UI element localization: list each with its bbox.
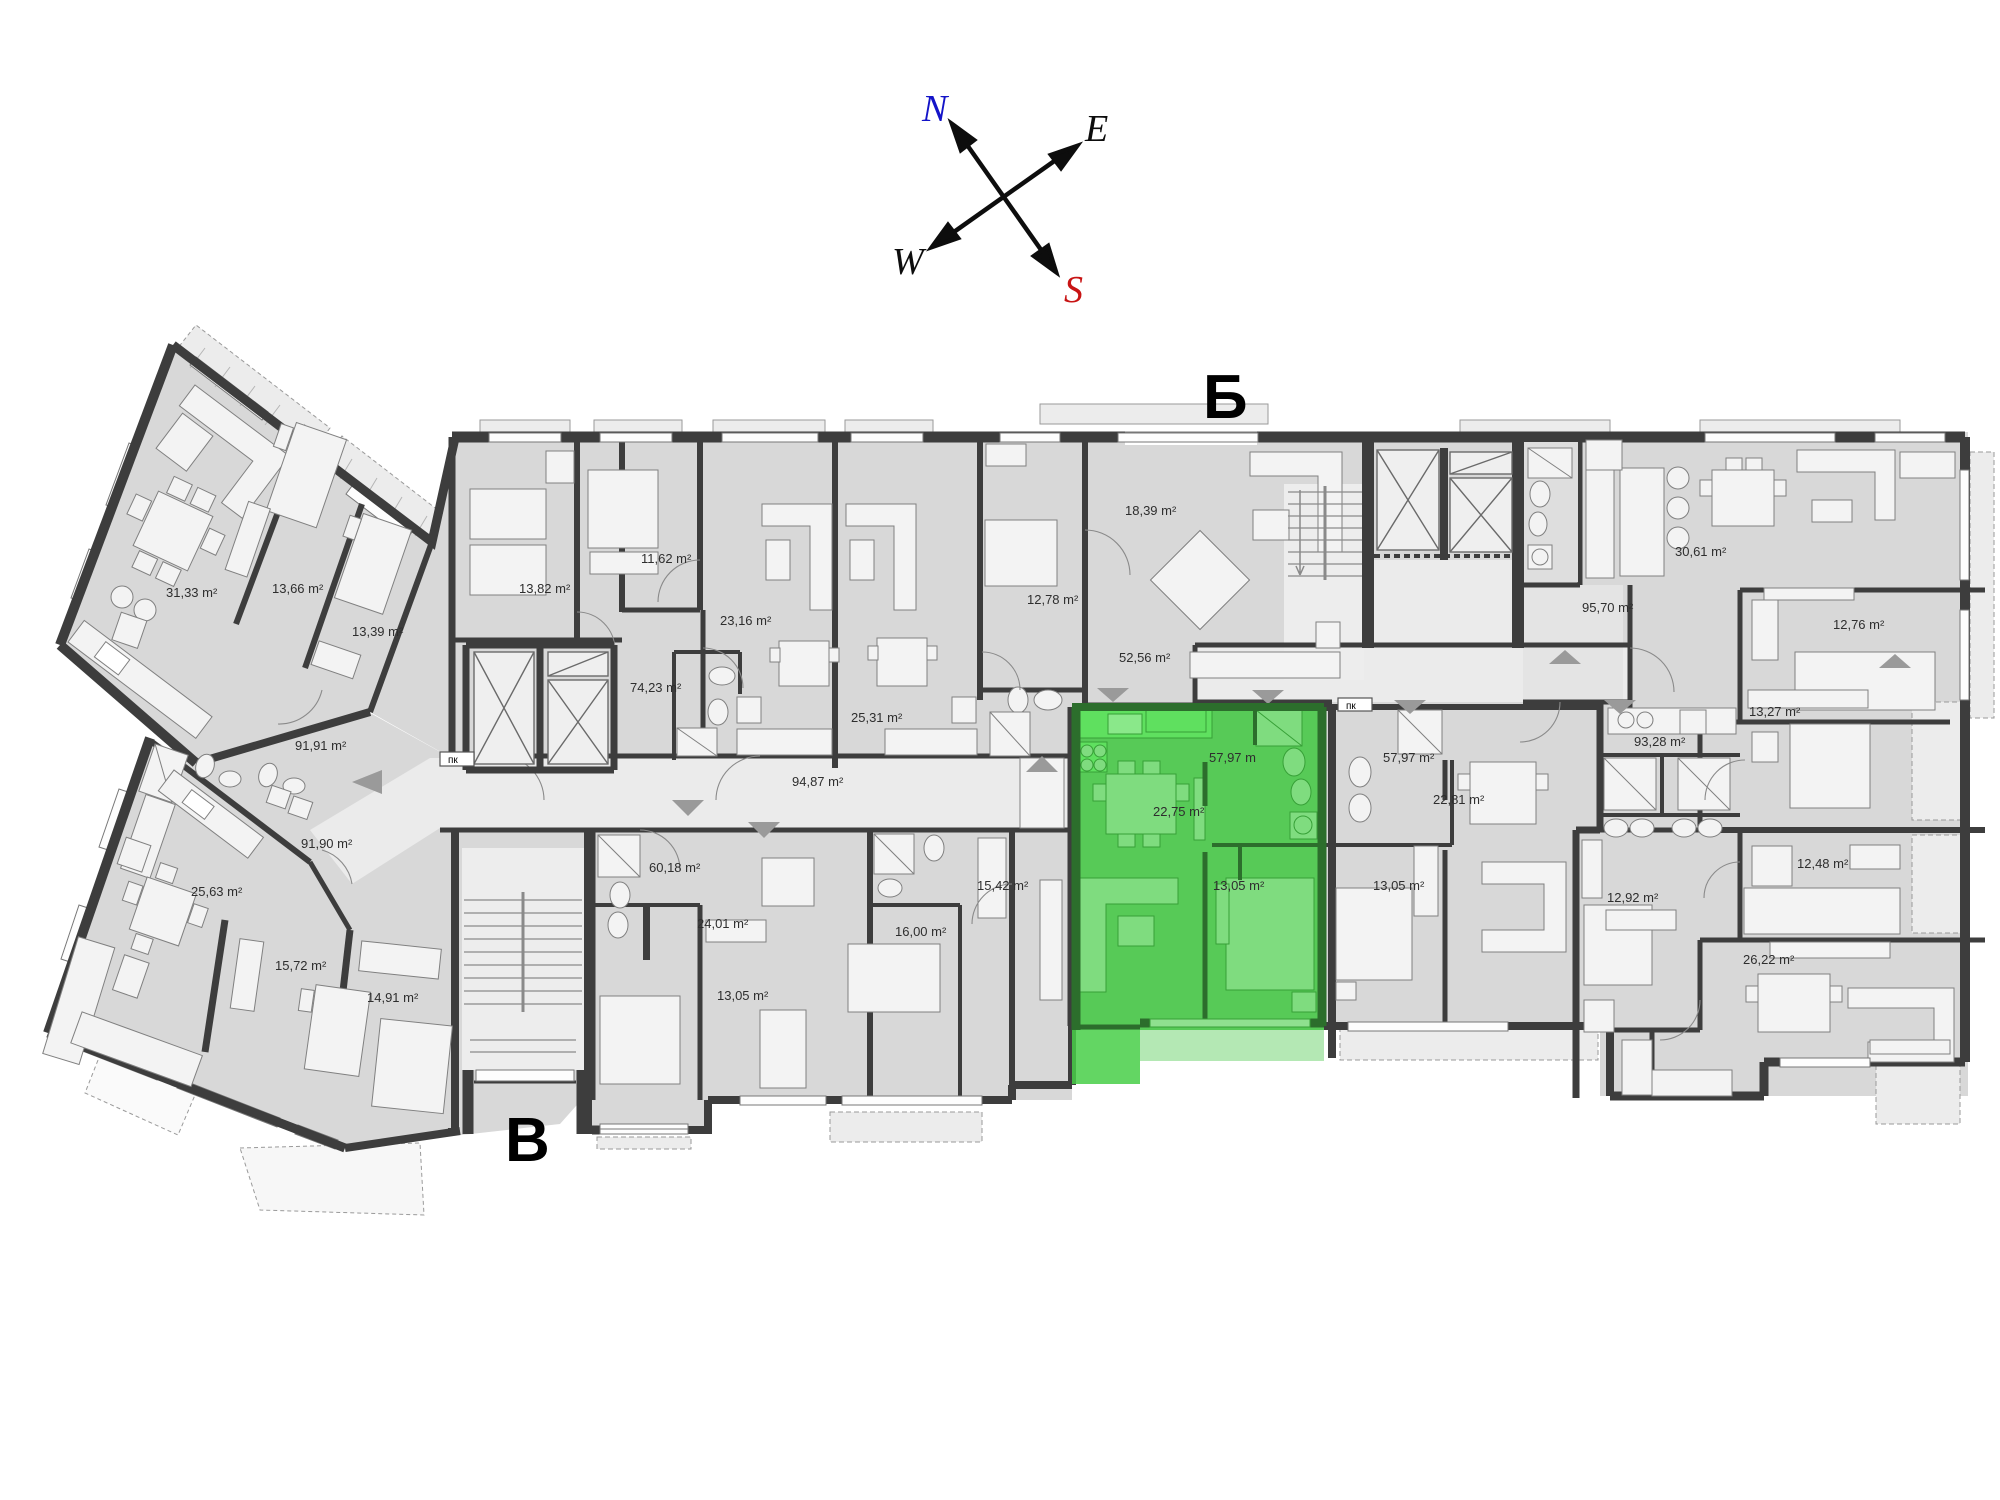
svg-text:E: E (1084, 108, 1108, 150)
svg-text:14,91 m²: 14,91 m² (367, 990, 419, 1005)
svg-text:16,00 m²: 16,00 m² (895, 924, 947, 939)
svg-text:W: W (892, 241, 927, 283)
svg-text:15,72 m²: 15,72 m² (275, 958, 327, 973)
svg-text:31,33 m²: 31,33 m² (166, 585, 218, 600)
svg-text:24,01 m²: 24,01 m² (697, 916, 749, 931)
svg-text:74,23 m²: 74,23 m² (630, 680, 682, 695)
svg-text:13,05 m²: 13,05 m² (1213, 878, 1265, 893)
svg-text:95,70 m²: 95,70 m² (1582, 600, 1634, 615)
svg-text:57,97 m²: 57,97 m² (1383, 750, 1435, 765)
svg-text:11,62 m²: 11,62 m² (641, 551, 692, 566)
svg-text:13,05 m²: 13,05 m² (717, 988, 769, 1003)
svg-text:25,63 m²: 25,63 m² (191, 884, 243, 899)
svg-text:60,18 m²: 60,18 m² (649, 860, 701, 875)
svg-text:94,87 m²: 94,87 m² (792, 774, 844, 789)
svg-text:26,22 m²: 26,22 m² (1743, 952, 1795, 967)
svg-text:25,31 m²: 25,31 m² (851, 710, 903, 725)
svg-text:91,91 m²: 91,91 m² (295, 738, 347, 753)
svg-text:18,39 m²: 18,39 m² (1125, 503, 1177, 518)
svg-text:22,75 m²: 22,75 m² (1153, 804, 1205, 819)
svg-text:91,90 m²: 91,90 m² (301, 836, 353, 851)
svg-text:93,28 m²: 93,28 m² (1634, 734, 1686, 749)
svg-text:15,42 m²: 15,42 m² (977, 878, 1029, 893)
svg-text:13,27 m²: 13,27 m² (1749, 704, 1801, 719)
svg-text:пк: пк (448, 755, 458, 766)
svg-text:52,56 m²: 52,56 m² (1119, 650, 1171, 665)
svg-text:13,66 m²: 13,66 m² (272, 581, 324, 596)
svg-text:13,05 m²: 13,05 m² (1373, 878, 1425, 893)
svg-text:12,76 m²: 12,76 m² (1833, 617, 1885, 632)
svg-text:12,92 m²: 12,92 m² (1607, 890, 1659, 905)
svg-text:12,48 m²: 12,48 m² (1797, 856, 1849, 871)
svg-text:пк: пк (1346, 701, 1356, 712)
svg-text:30,61 m²: 30,61 m² (1675, 544, 1727, 559)
svg-text:57,97 m: 57,97 m (1209, 750, 1256, 765)
svg-text:12,78 m²: 12,78 m² (1027, 592, 1079, 607)
svg-text:N: N (921, 88, 950, 130)
svg-text:22,81 m²: 22,81 m² (1433, 792, 1485, 807)
svg-text:13,82 m²: 13,82 m² (519, 581, 571, 596)
svg-text:13,39 m²: 13,39 m² (352, 624, 404, 639)
svg-text:В: В (505, 1106, 550, 1175)
svg-text:Б: Б (1203, 363, 1248, 432)
svg-text:23,16 m²: 23,16 m² (720, 613, 772, 628)
svg-text:S: S (1064, 269, 1083, 311)
